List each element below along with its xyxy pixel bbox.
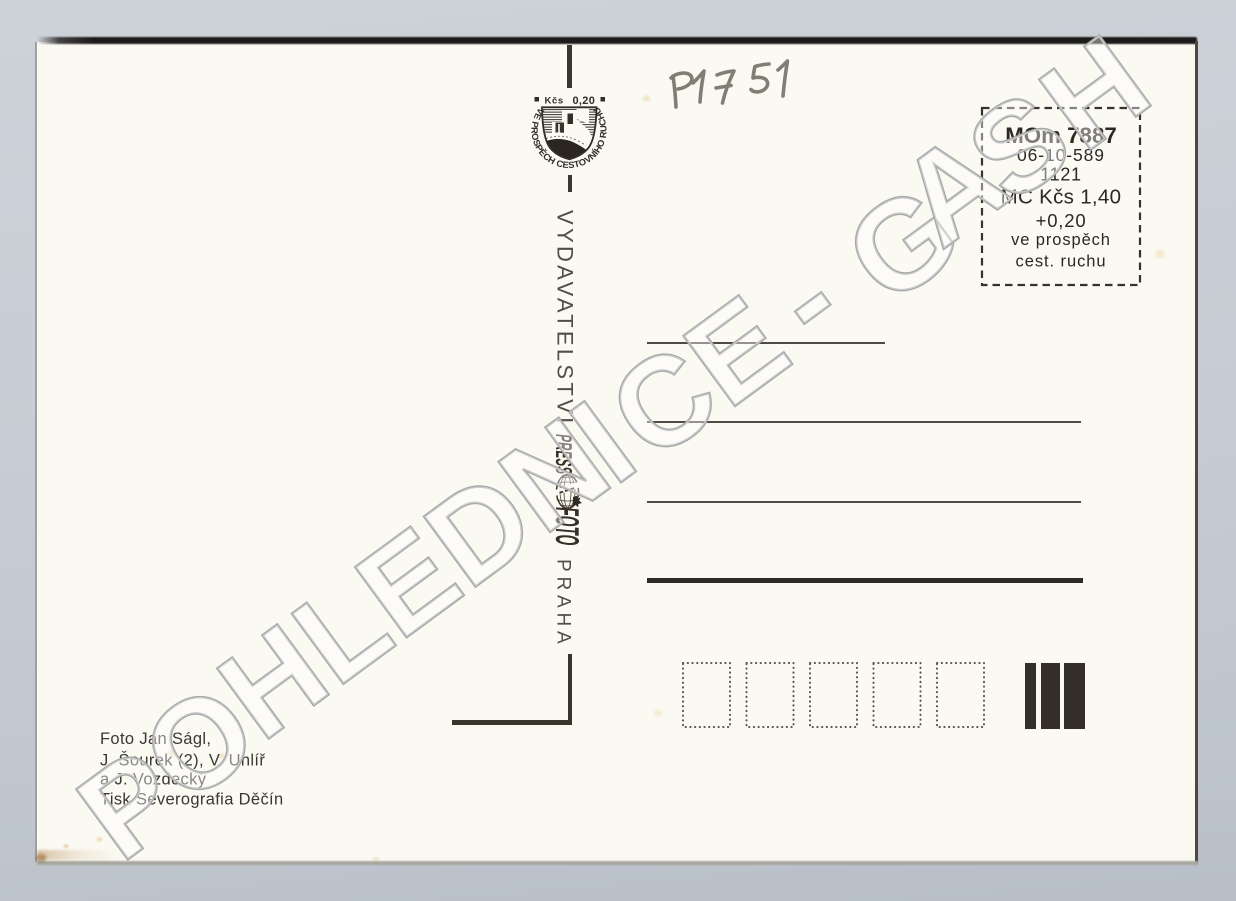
svg-text:POHLEDNICE - GASH: POHLEDNICE - GASH bbox=[45, 0, 1179, 891]
svg-text:0,20: 0,20 bbox=[573, 95, 596, 107]
svg-text:PRAHA: PRAHA bbox=[553, 559, 574, 648]
svg-text:Kčs: Kčs bbox=[545, 95, 564, 106]
